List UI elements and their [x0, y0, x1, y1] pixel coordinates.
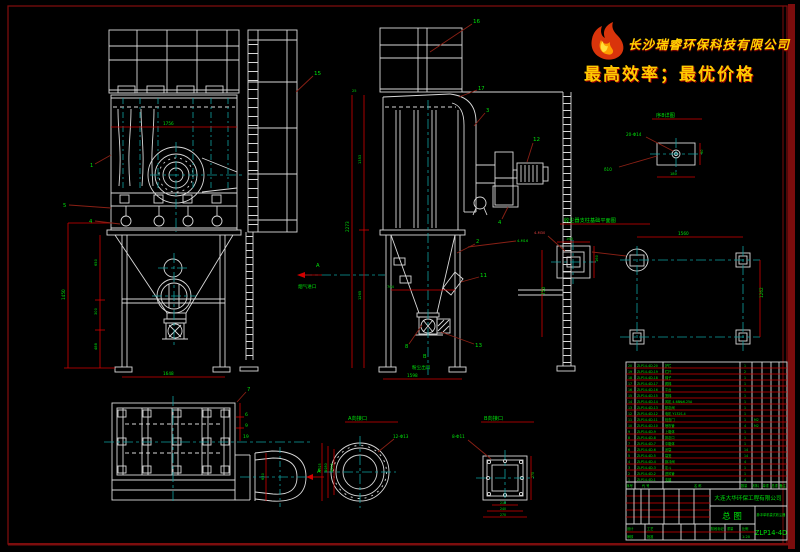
front-dim-mid-width: 1756: [163, 121, 174, 126]
flange-a-detail: A向接口 12-Φ13 Φ325 Φ280 Φ245: [318, 414, 409, 508]
bom-name: 笼梯: [665, 393, 672, 398]
bom-no: 14: [628, 400, 632, 404]
bom-code: ZLP14-4D-13: [637, 406, 658, 410]
foundation-depth: 1262: [759, 287, 764, 298]
bom-no: 13: [628, 406, 632, 410]
side-dim-hopper: 704: [387, 285, 395, 289]
balloon-8: 8: [405, 344, 408, 350]
bom-name: 电机 Y132S-4: [665, 411, 686, 416]
bom-name: 进风管: [665, 471, 675, 476]
detail8-thickness: δ10: [604, 167, 612, 172]
balloon-19: 19: [243, 434, 249, 440]
flange-a-title: A向接口: [348, 414, 367, 422]
bom-no: 6: [628, 448, 630, 452]
side-dim-bottom: 1598: [407, 373, 418, 378]
plan-view: 630 A 7 6 9 19: [104, 387, 324, 507]
bom-name: 检查门: [665, 417, 675, 422]
scale-label: 比例: [742, 526, 748, 531]
balloon-12: 12: [533, 137, 540, 143]
bom-qty: 1: [744, 406, 746, 410]
bom-no: 15: [628, 394, 632, 398]
bom-no: 7: [628, 442, 630, 446]
bom-name: 灰斗: [665, 465, 671, 470]
bolt-note: 4-M16: [517, 239, 529, 243]
bom-qty: 1: [744, 442, 746, 446]
bom-qty: 1: [744, 364, 746, 368]
balloon-11: 11: [480, 273, 488, 279]
sign-check: 审核: [627, 534, 634, 539]
bom-mat: M2: [754, 424, 759, 428]
side-dim-lower: 1265: [358, 291, 362, 300]
bom-code: ZLP14-4D-6: [637, 448, 656, 452]
flange-a-d2: Φ280: [324, 463, 328, 472]
bom-code: ZLP14-4D-8: [637, 436, 656, 440]
foundation-plan: 收尘器支柱基础平面图 160 160 4-M30 1560 1262: [534, 216, 764, 352]
bom-qty: 4: [744, 460, 746, 464]
bom-no: 3: [628, 466, 630, 470]
front-dim-total-h: 1450: [61, 289, 66, 300]
bom-name: 上箱体: [665, 429, 675, 434]
sign-process: 工艺: [647, 526, 653, 531]
balloon-1: 1: [90, 163, 93, 169]
logo-company-name: 长沙瑞睿环保科技有限公司: [628, 34, 790, 53]
bom-qty: 1: [744, 388, 746, 392]
bom-no: 4: [628, 460, 630, 464]
bom-code: ZLP14-4D-12: [637, 412, 658, 416]
sign-approve: 批准: [647, 534, 654, 539]
detail-8: 序8详图 20-Φ14 δ10 180 90: [604, 111, 704, 177]
flange-b-detail: B向接口 8-Φ11 210 240 270 270: [452, 414, 535, 517]
bom-no: 5: [628, 454, 630, 458]
bom-qty: 4: [744, 424, 746, 428]
detail8-title: 序8详图: [656, 111, 675, 119]
bom-qty: 1: [744, 394, 746, 398]
bom-qty: 1: [744, 436, 746, 440]
balloon-7: 7: [247, 387, 250, 393]
bom-qty: 14: [744, 448, 748, 452]
foundation-title: 收尘器支柱基础平面图: [564, 216, 616, 224]
bom-no: 8: [628, 436, 630, 440]
bom-code: ZLP14-4D-3: [637, 466, 656, 470]
detail8-width: 180: [670, 172, 678, 176]
bom-code: ZLP14-4D-4: [637, 460, 656, 464]
bom-qty: 2: [744, 370, 746, 374]
bom-qty: 1: [744, 382, 746, 386]
flange-a-d3: Φ325: [318, 463, 322, 472]
bom-name: 风机 4-68№6.25A: [665, 399, 693, 404]
bom-code: ZLP14-4D-19: [637, 370, 658, 374]
side-view: A 烟气进口 B 粉尘出口 2273 1353 1265 25 704 750 …: [297, 19, 575, 379]
bom-name: 卸灰阀: [665, 405, 675, 410]
flange-a-d1: Φ245: [330, 463, 334, 472]
detail8-height: 90: [700, 149, 704, 154]
flange-b-w1: 210: [500, 501, 506, 505]
bom-no: 16: [628, 388, 632, 392]
cad-sheet: 1756 1450 650 300 488 1648 15 1 5 4: [0, 0, 800, 552]
inlet-label: 烟气进口: [298, 283, 317, 290]
bom-qty: 1: [744, 466, 746, 470]
bom-qty: 1: [744, 400, 746, 404]
bom-code: ZLP14-4D-17: [637, 382, 658, 386]
bom-code: ZLP14-4D-20: [637, 364, 658, 368]
foundation-pad-h: 160: [595, 254, 599, 262]
bom-qty: 1: [744, 376, 746, 380]
flange-b-holes: 8-Φ11: [452, 434, 465, 439]
drawing-number: ZLP14-4D: [755, 529, 787, 537]
section-arrow-b: B: [423, 354, 427, 360]
front-dim-seg3: 488: [94, 342, 98, 350]
bom-no: 19: [628, 370, 632, 374]
bom-no: 2: [628, 472, 630, 476]
flange-b-w3: 270: [500, 513, 506, 517]
bom-qty: 14: [744, 454, 748, 458]
bom-qty: 1: [744, 472, 746, 476]
flange-b-title: B向接口: [484, 414, 503, 422]
bom-header-uw: 单重: [763, 483, 770, 488]
bom-code: ZLP14-4D-7: [637, 442, 656, 446]
sign-design: 设计: [627, 526, 634, 531]
bom-header-mat: 材料: [753, 483, 760, 488]
bom-code: ZLP14-4D-15: [637, 394, 658, 398]
product-name: 脉冲单机袋式收尘器: [757, 512, 786, 517]
foundation-pad-w: 160: [566, 237, 574, 241]
bom-no: 12: [628, 412, 632, 416]
bom-header-qty: 数量: [741, 483, 748, 488]
bom-code: ZLP14-4D-14: [637, 400, 658, 404]
balloon-15: 15: [314, 71, 322, 77]
bom-name: 栏杆: [665, 369, 672, 374]
balloon-4: 4: [89, 219, 93, 225]
flange-b-w2: 240: [500, 507, 506, 511]
side-dim-upper: 1353: [358, 155, 362, 164]
bom-name: 中箱体: [665, 441, 675, 446]
bom-no: 17: [628, 382, 632, 386]
bom-name: 脉冲阀: [665, 459, 675, 464]
bom-header-tw: 总重: [772, 483, 779, 488]
front-dim-bottom: 1648: [163, 371, 174, 376]
flange-a-holes: 12-Φ13: [393, 434, 409, 439]
bom-code: ZLP14-4D-18: [637, 376, 658, 380]
bom-name: 滤袋: [665, 447, 672, 452]
bom-qty: 4: [744, 478, 746, 482]
bom-no: 9: [628, 430, 630, 434]
bom-no: 10: [628, 424, 632, 428]
bom-code: ZLP14-4D-1: [637, 478, 656, 482]
bom-header-no: 序号: [627, 483, 633, 488]
bom-code: ZLP14-4D-2: [637, 472, 656, 476]
bom-code: ZLP14-4D-11: [637, 418, 658, 422]
flame-icon: [582, 22, 626, 62]
bom-qty: 1: [744, 430, 746, 434]
bom-code: ZLP14-4D-9: [637, 430, 656, 434]
balloon-9: 9: [245, 423, 248, 429]
bom-name: 梯子: [665, 375, 672, 380]
section-arrow-a: A: [316, 263, 320, 269]
bom-header-code: 代 号: [642, 483, 649, 488]
front-dim-seg1: 650: [94, 258, 98, 266]
balloon-17: 17: [478, 86, 485, 92]
bom-name: 护栏: [665, 363, 672, 368]
foundation-anchor-note: 4-M30: [534, 231, 546, 235]
plan-dim-duct: 630: [261, 472, 265, 480]
company-logo: 长沙瑞睿环保科技有限公司 最高效率；最优价格: [582, 22, 797, 88]
bom-header-rem: 备注: [780, 483, 787, 488]
balloon-16: 16: [473, 19, 481, 25]
titleblock-company: 大连大华环保工程有限公司: [714, 494, 781, 502]
bom-name: 袋笼: [665, 453, 672, 458]
bom-qty: 1: [744, 412, 746, 416]
front-dim-seg2: 300: [94, 307, 98, 315]
front-view: 1756 1450 650 300 488 1648 15 1 5 4: [61, 30, 322, 377]
dust-outlet-label: 粉尘出口: [412, 364, 431, 371]
side-dim-top: 25: [352, 89, 357, 93]
bom-name: 排灰口: [665, 435, 675, 440]
bom-no: 11: [628, 418, 632, 422]
flange-b-h: 270: [531, 472, 535, 478]
bom-name: 平台: [665, 387, 671, 392]
balloon-3: 3: [486, 108, 489, 114]
drawing-type: 总 图: [722, 511, 742, 522]
bom-name: 爬梯: [665, 381, 672, 386]
scale-value: 1:20: [742, 535, 751, 539]
bom-code: ZLP14-4D-5: [637, 454, 656, 458]
weight-label: 重量: [727, 526, 734, 531]
stage-label: 阶段标记: [711, 526, 725, 531]
balloon-5: 5: [63, 203, 66, 209]
detail8-holes: 20-Φ14: [626, 132, 642, 137]
bom-no: 1: [628, 478, 630, 482]
bom-code: ZLP14-4D-10: [637, 424, 658, 428]
bom-qty: 1: [744, 418, 746, 422]
balloon-2: 2: [476, 239, 479, 245]
bom-code: ZLP14-4D-16: [637, 388, 658, 392]
balloon-6: 6: [245, 412, 248, 418]
foundation-width: 1560: [678, 231, 689, 236]
bom-name: 喷吹管: [665, 423, 675, 428]
title-block: 设计 审核 工艺 批准 大连大华环保工程有限公司 总 图 脉冲单机袋式收尘器 Z…: [626, 489, 787, 540]
balloon-13: 13: [475, 343, 483, 349]
bom-header-name: 名 称: [694, 483, 702, 488]
bom-mat: M2: [754, 418, 759, 422]
bom-no: 20: [628, 364, 632, 368]
bom-no: 18: [628, 376, 632, 380]
side-dim-right: 750: [541, 287, 546, 295]
bom-name: 支腿: [665, 477, 672, 482]
balloon-4-side: 4: [498, 220, 502, 226]
logo-tagline: 最高效率；最优价格: [584, 60, 755, 85]
side-dim-total: 2273: [345, 221, 350, 232]
